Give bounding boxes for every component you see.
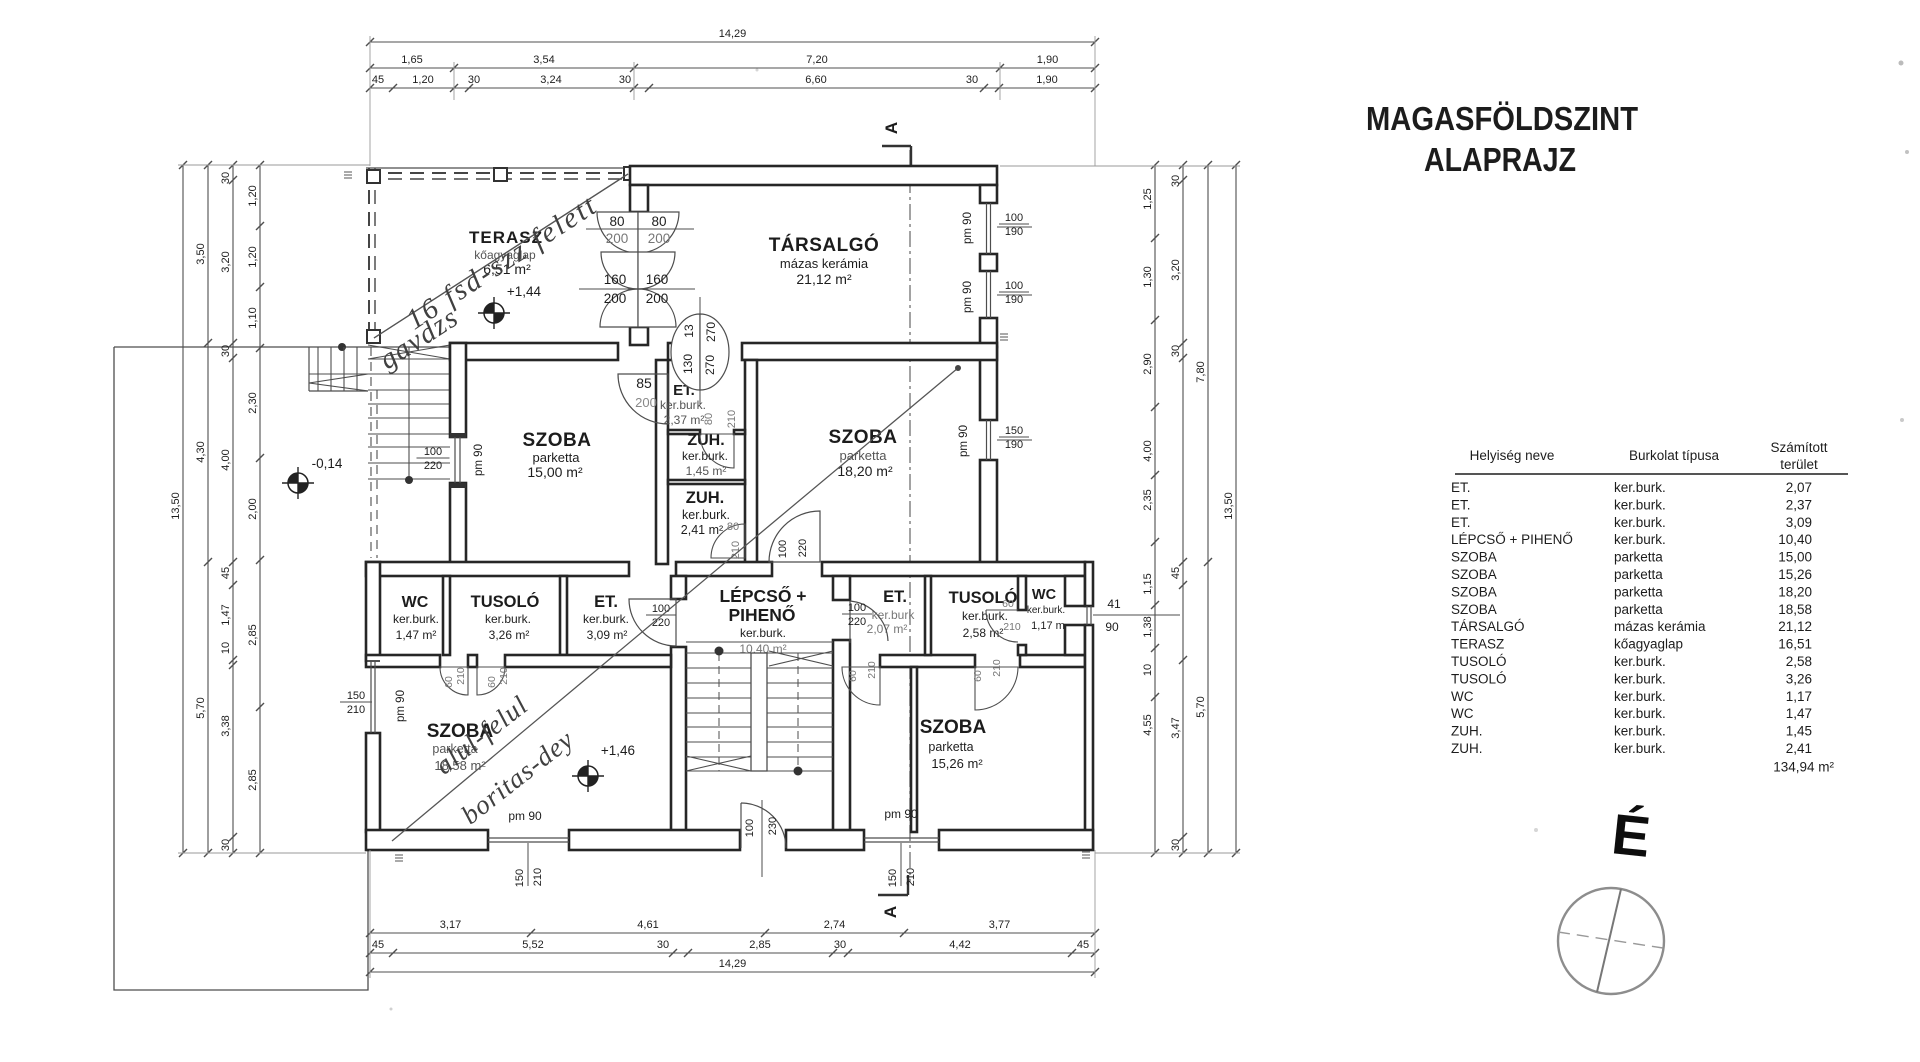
svg-text:PIHENŐ: PIHENŐ [728,604,795,625]
svg-text:30: 30 [1170,345,1182,357]
svg-text:45: 45 [220,567,232,579]
svg-text:210: 210 [726,410,738,428]
svg-text:ET.: ET. [1451,515,1471,530]
svg-text:1,10: 1,10 [247,307,259,328]
svg-text:4,42: 4,42 [949,939,970,951]
svg-text:1,47: 1,47 [220,604,232,625]
svg-text:Számított: Számított [1770,440,1827,455]
svg-text:2,30: 2,30 [247,392,259,413]
svg-text:220: 220 [424,460,442,472]
svg-text:ET.: ET. [1451,497,1471,512]
svg-text:1,45 m²: 1,45 m² [686,464,727,478]
svg-text:210: 210 [455,667,467,685]
svg-text:10,40: 10,40 [1778,532,1812,547]
svg-text:pm 90: pm 90 [958,425,970,457]
svg-text:1,47 m²: 1,47 m² [396,628,437,642]
svg-text:13: 13 [682,324,696,338]
svg-text:150: 150 [1005,425,1023,437]
svg-text:160: 160 [604,272,627,287]
svg-text:SZOBA: SZOBA [523,430,592,451]
svg-text:WC: WC [1451,706,1474,721]
svg-text:3,38: 3,38 [220,715,232,736]
svg-text:ALAPRAJZ: ALAPRAJZ [1424,141,1576,178]
svg-text:100: 100 [1005,212,1023,224]
svg-text:kőagyaglap: kőagyaglap [1614,637,1683,652]
svg-text:3,20: 3,20 [1170,259,1182,280]
svg-text:ker.burk.: ker.burk. [1614,515,1666,530]
svg-text:ker.burk.: ker.burk. [1614,741,1666,756]
svg-text:3,20: 3,20 [220,251,232,272]
svg-text:220: 220 [652,617,670,629]
svg-text:85: 85 [636,375,652,391]
svg-text:100: 100 [848,602,866,614]
svg-text:SZOBA: SZOBA [920,717,987,738]
svg-text:3,26: 3,26 [1786,671,1812,686]
svg-text:4,55: 4,55 [1142,714,1154,735]
svg-text:1,20: 1,20 [247,185,259,206]
svg-text:2,37: 2,37 [1786,497,1812,512]
svg-text:ZUH.: ZUH. [1451,724,1483,739]
svg-text:parketta: parketta [1614,602,1663,617]
svg-text:13,50: 13,50 [1223,492,1235,520]
svg-text:3,50: 3,50 [195,243,207,264]
svg-text:210: 210 [498,667,510,685]
svg-text:TÁRSALGÓ: TÁRSALGÓ [769,234,880,256]
svg-text:pm 90: pm 90 [962,212,974,244]
svg-text:ker.burk.: ker.burk. [1027,605,1065,616]
svg-text:1,38: 1,38 [1142,616,1154,637]
svg-text:45: 45 [372,939,384,951]
svg-text:1,65: 1,65 [401,54,422,66]
svg-text:SZOBA: SZOBA [829,427,898,448]
svg-text:15,00 m²: 15,00 m² [527,464,583,480]
svg-text:15,00: 15,00 [1778,550,1812,565]
svg-text:60: 60 [486,676,498,688]
svg-text:3,54: 3,54 [533,54,554,66]
svg-text:1,90: 1,90 [1037,54,1058,66]
svg-text:ker.burk.: ker.burk. [1614,497,1666,512]
svg-text:21,12 m²: 21,12 m² [796,271,852,287]
svg-text:41: 41 [1107,597,1121,611]
svg-text:ker.burk.: ker.burk. [393,612,439,626]
svg-text:160: 160 [646,272,669,287]
svg-text:TUSOLÓ: TUSOLÓ [1451,671,1507,686]
svg-text:1,17: 1,17 [1786,689,1812,704]
svg-text:220: 220 [797,539,809,557]
svg-text:2,85: 2,85 [749,939,770,951]
svg-text:2,35: 2,35 [1142,489,1154,510]
svg-text:mázas kerámia: mázas kerámia [1614,619,1706,634]
svg-text:ker.burk.: ker.burk. [485,612,531,626]
svg-text:parketta: parketta [1614,550,1663,565]
svg-text:200: 200 [646,291,669,306]
svg-text:130: 130 [681,354,695,374]
svg-text:WC: WC [1032,587,1057,603]
svg-text:-0,14: -0,14 [312,456,343,471]
svg-text:16,51: 16,51 [1778,637,1812,652]
svg-text:TUSOLÓ: TUSOLÓ [471,592,540,611]
svg-text:MAGASFÖLDSZINT: MAGASFÖLDSZINT [1366,100,1638,137]
svg-text:ker.burk.: ker.burk. [1614,724,1666,739]
svg-text:TÁRSALGÓ: TÁRSALGÓ [1451,619,1525,634]
svg-text:Burkolat típusa: Burkolat típusa [1629,448,1720,463]
svg-text:1,30: 1,30 [1142,266,1154,287]
svg-text:200: 200 [648,231,671,246]
svg-text:14,29: 14,29 [719,958,747,970]
svg-text:18,58: 18,58 [1778,602,1812,617]
svg-text:30: 30 [220,172,232,184]
svg-text:2,74: 2,74 [824,919,845,931]
svg-text:100: 100 [777,540,789,558]
svg-text:parketta: parketta [928,740,973,754]
svg-text:terület: terület [1780,457,1818,472]
svg-text:10: 10 [220,642,232,654]
svg-text:3,77: 3,77 [989,919,1010,931]
svg-text:LÉPCSŐ +: LÉPCSŐ + [719,585,806,606]
svg-text:200: 200 [604,291,627,306]
svg-text:30: 30 [1170,839,1182,851]
svg-text:18,20 m²: 18,20 m² [837,463,893,479]
svg-text:ET.: ET. [594,593,618,611]
svg-text:pm 90: pm 90 [395,690,407,722]
svg-text:7,80: 7,80 [1195,361,1207,382]
svg-text:ker.burk.: ker.burk. [1614,654,1666,669]
svg-text:2,85: 2,85 [247,769,259,790]
svg-text:100: 100 [744,819,756,837]
svg-text:4,61: 4,61 [637,919,658,931]
svg-text:80: 80 [727,521,739,533]
svg-text:pm 90: pm 90 [473,444,485,476]
svg-text:+1,44: +1,44 [507,284,542,299]
svg-text:ker.burk.: ker.burk. [682,508,730,522]
svg-text:150: 150 [887,869,899,887]
svg-text:80: 80 [609,214,624,229]
svg-text:WC: WC [1451,689,1474,704]
svg-text:190: 190 [1005,226,1023,238]
svg-text:220: 220 [848,616,866,628]
svg-text:30: 30 [657,939,669,951]
svg-text:2,37 m²: 2,37 m² [664,413,705,427]
svg-text:15,26: 15,26 [1778,567,1812,582]
svg-text:ker.burk.: ker.burk. [962,609,1008,623]
svg-text:100: 100 [1005,280,1023,292]
svg-text:ET.: ET. [1451,480,1471,495]
svg-text:ker.burk.: ker.burk. [1614,671,1666,686]
svg-text:2,07: 2,07 [1786,480,1812,495]
svg-text:ZUH.: ZUH. [686,489,725,507]
svg-text:2,90: 2,90 [1142,353,1154,374]
svg-text:200: 200 [606,231,629,246]
svg-text:1,90: 1,90 [1036,74,1057,86]
svg-text:mázas kerámia: mázas kerámia [780,256,869,271]
svg-text:1,47: 1,47 [1786,706,1812,721]
svg-text:É: É [1609,802,1654,870]
svg-text:2,41: 2,41 [1786,741,1812,756]
svg-text:pm 90: pm 90 [884,807,918,821]
svg-text:90: 90 [1105,620,1119,634]
svg-text:ker.burk.: ker.burk. [1614,480,1666,495]
svg-text:1,15: 1,15 [1142,573,1154,594]
svg-text:30: 30 [220,839,232,851]
svg-text:4,30: 4,30 [195,441,207,462]
svg-text:60: 60 [443,676,455,688]
svg-text:7,20: 7,20 [806,54,827,66]
svg-text:WC: WC [402,594,429,611]
svg-text:1,25: 1,25 [1142,188,1154,209]
svg-text:18,20: 18,20 [1778,584,1812,599]
svg-text:SZOBA: SZOBA [1451,602,1497,617]
svg-text:1,17 m: 1,17 m [1031,620,1065,632]
svg-text:5,52: 5,52 [522,939,543,951]
svg-text:2,00: 2,00 [247,498,259,519]
svg-text:3,47: 3,47 [1170,717,1182,738]
svg-text:5,70: 5,70 [1195,696,1207,717]
svg-text:30: 30 [834,939,846,951]
svg-text:SZOBA: SZOBA [1451,584,1497,599]
svg-text:21,12: 21,12 [1778,619,1812,634]
svg-text:30: 30 [619,74,631,86]
svg-text:30: 30 [220,345,232,357]
svg-text:4,00: 4,00 [1142,440,1154,461]
svg-text:SZOBA: SZOBA [1451,567,1497,582]
svg-text:210: 210 [347,704,365,716]
svg-text:5,70: 5,70 [195,697,207,718]
svg-text:parketta: parketta [533,450,581,465]
svg-text:A: A [881,906,900,918]
svg-text:ET.: ET. [883,588,907,606]
svg-text:10: 10 [1142,664,1154,676]
svg-text:190: 190 [1005,294,1023,306]
svg-text:ker.burk.: ker.burk. [1614,532,1666,547]
svg-text:60: 60 [847,670,859,682]
svg-text:210: 210 [991,659,1003,677]
svg-text:100: 100 [424,446,442,458]
svg-text:3,26 m²: 3,26 m² [489,628,530,642]
svg-text:parketta: parketta [1614,584,1663,599]
svg-text:2,58: 2,58 [1786,654,1812,669]
svg-text:210: 210 [905,868,917,886]
svg-text:1,20: 1,20 [412,74,433,86]
svg-text:210: 210 [532,868,544,886]
svg-text:+1,46: +1,46 [601,743,635,758]
svg-text:13,50: 13,50 [170,492,182,520]
svg-text:3,09: 3,09 [1786,515,1812,530]
svg-text:210: 210 [1003,621,1021,633]
svg-text:ker.burk.: ker.burk. [1614,689,1666,704]
svg-text:2,85: 2,85 [247,624,259,645]
svg-text:2,58 m²: 2,58 m² [963,626,1004,640]
svg-text:2,41 m²: 2,41 m² [681,523,723,537]
svg-text:150: 150 [347,690,365,702]
svg-text:200: 200 [635,395,657,410]
svg-text:LÉPCSŐ + PIHENŐ: LÉPCSŐ + PIHENŐ [1451,532,1573,547]
svg-text:TUSOLÓ: TUSOLÓ [1451,654,1507,669]
svg-text:14,29: 14,29 [719,28,747,40]
svg-text:parketta: parketta [1614,567,1663,582]
svg-text:270: 270 [703,355,717,375]
svg-text:3,24: 3,24 [540,74,561,86]
svg-text:A: A [882,122,901,134]
svg-text:ker.burk.: ker.burk. [583,612,629,626]
svg-text:45: 45 [1077,939,1089,951]
svg-text:TERASZ: TERASZ [1451,637,1504,652]
svg-text:pm 90: pm 90 [962,281,974,313]
svg-text:190: 190 [1005,439,1023,451]
svg-text:80: 80 [703,413,715,425]
svg-text:30: 30 [468,74,480,86]
svg-text:ker.burk.: ker.burk. [1614,706,1666,721]
svg-text:150: 150 [514,869,526,887]
svg-text:230: 230 [767,817,779,835]
svg-text:1,20: 1,20 [247,246,259,267]
svg-text:45: 45 [1170,567,1182,579]
svg-text:210: 210 [866,661,878,679]
svg-text:30: 30 [966,74,978,86]
svg-text:60: 60 [972,670,984,682]
svg-text:1,45: 1,45 [1786,724,1812,739]
svg-text:6,60: 6,60 [805,74,826,86]
svg-text:SZOBA: SZOBA [1451,550,1497,565]
svg-text:15,26 m²: 15,26 m² [931,756,983,771]
svg-text:80: 80 [651,214,666,229]
svg-text:270: 270 [704,322,718,342]
svg-text:pm 90: pm 90 [508,809,542,823]
svg-text:ker.burk.: ker.burk. [660,398,706,412]
svg-text:60: 60 [1002,598,1014,610]
svg-text:100: 100 [652,603,670,615]
svg-text:4,00: 4,00 [220,449,232,470]
svg-text:3,09 m²: 3,09 m² [587,628,628,642]
svg-text:3,17: 3,17 [440,919,461,931]
svg-text:Helyiség neve: Helyiség neve [1470,448,1555,463]
svg-text:134,94 m²: 134,94 m² [1773,759,1834,774]
svg-text:30: 30 [1170,175,1182,187]
svg-text:ZUH.: ZUH. [1451,741,1483,756]
svg-text:45: 45 [372,74,384,86]
svg-text:ker.burk.: ker.burk. [740,626,786,640]
